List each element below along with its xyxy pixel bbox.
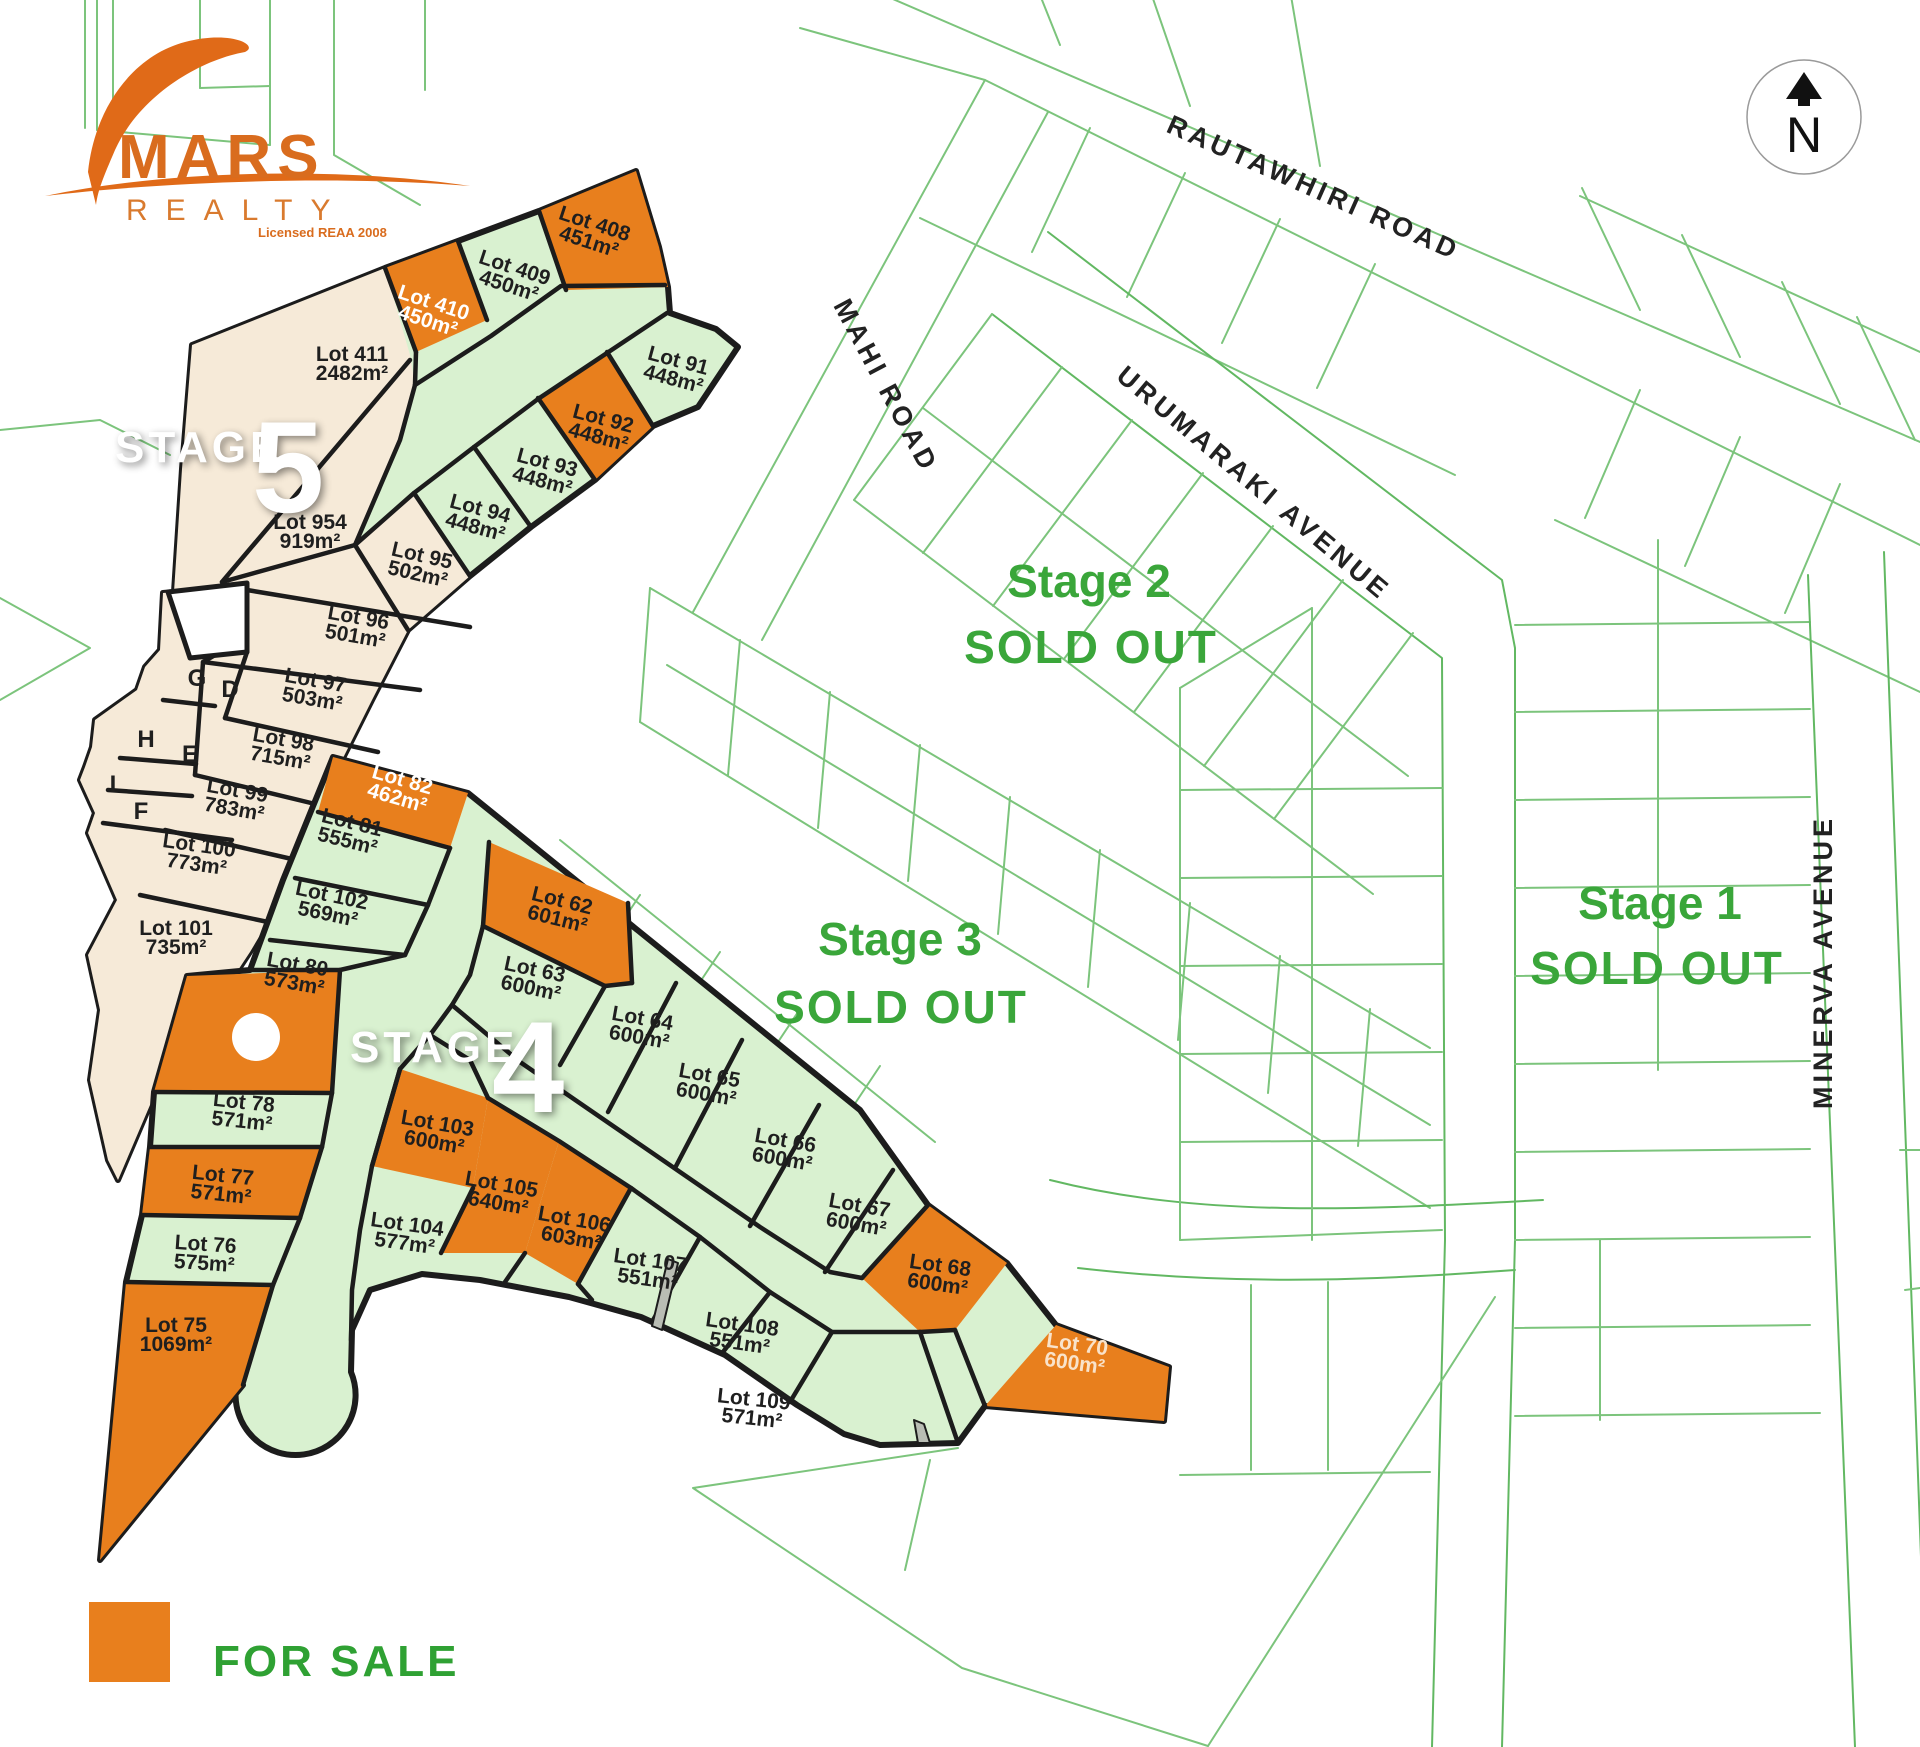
svg-text:4: 4 [492,994,564,1140]
svg-text:575m²: 575m² [173,1250,235,1277]
svg-text:E: E [182,741,198,768]
svg-text:N: N [1786,107,1822,163]
svg-text:Stage 2: Stage 2 [1007,555,1171,607]
svg-text:Licensed REAA 2008: Licensed REAA 2008 [258,225,387,240]
svg-text:MINERVA AVENUE: MINERVA AVENUE [1808,815,1838,1109]
svg-text:5: 5 [252,394,324,540]
svg-text:SOLD OUT: SOLD OUT [774,981,1028,1033]
svg-text:REALTY: REALTY [126,194,348,227]
svg-text:Stage 3: Stage 3 [818,913,982,965]
svg-text:Stage 1: Stage 1 [1578,877,1742,929]
svg-text:MARS: MARS [118,123,325,192]
svg-text:D: D [221,676,238,703]
svg-text:G: G [188,665,207,692]
svg-text:735m²: 735m² [146,936,207,959]
svg-text:2482m²: 2482m² [316,362,388,385]
svg-text:F: F [134,798,149,825]
svg-text:FOR SALE: FOR SALE [213,1637,459,1686]
svg-text:SOLD OUT: SOLD OUT [1530,942,1784,994]
svg-text:I: I [110,771,117,798]
svg-text:SOLD OUT: SOLD OUT [964,621,1218,673]
svg-text:H: H [137,726,154,753]
svg-text:1069m²: 1069m² [140,1333,212,1356]
